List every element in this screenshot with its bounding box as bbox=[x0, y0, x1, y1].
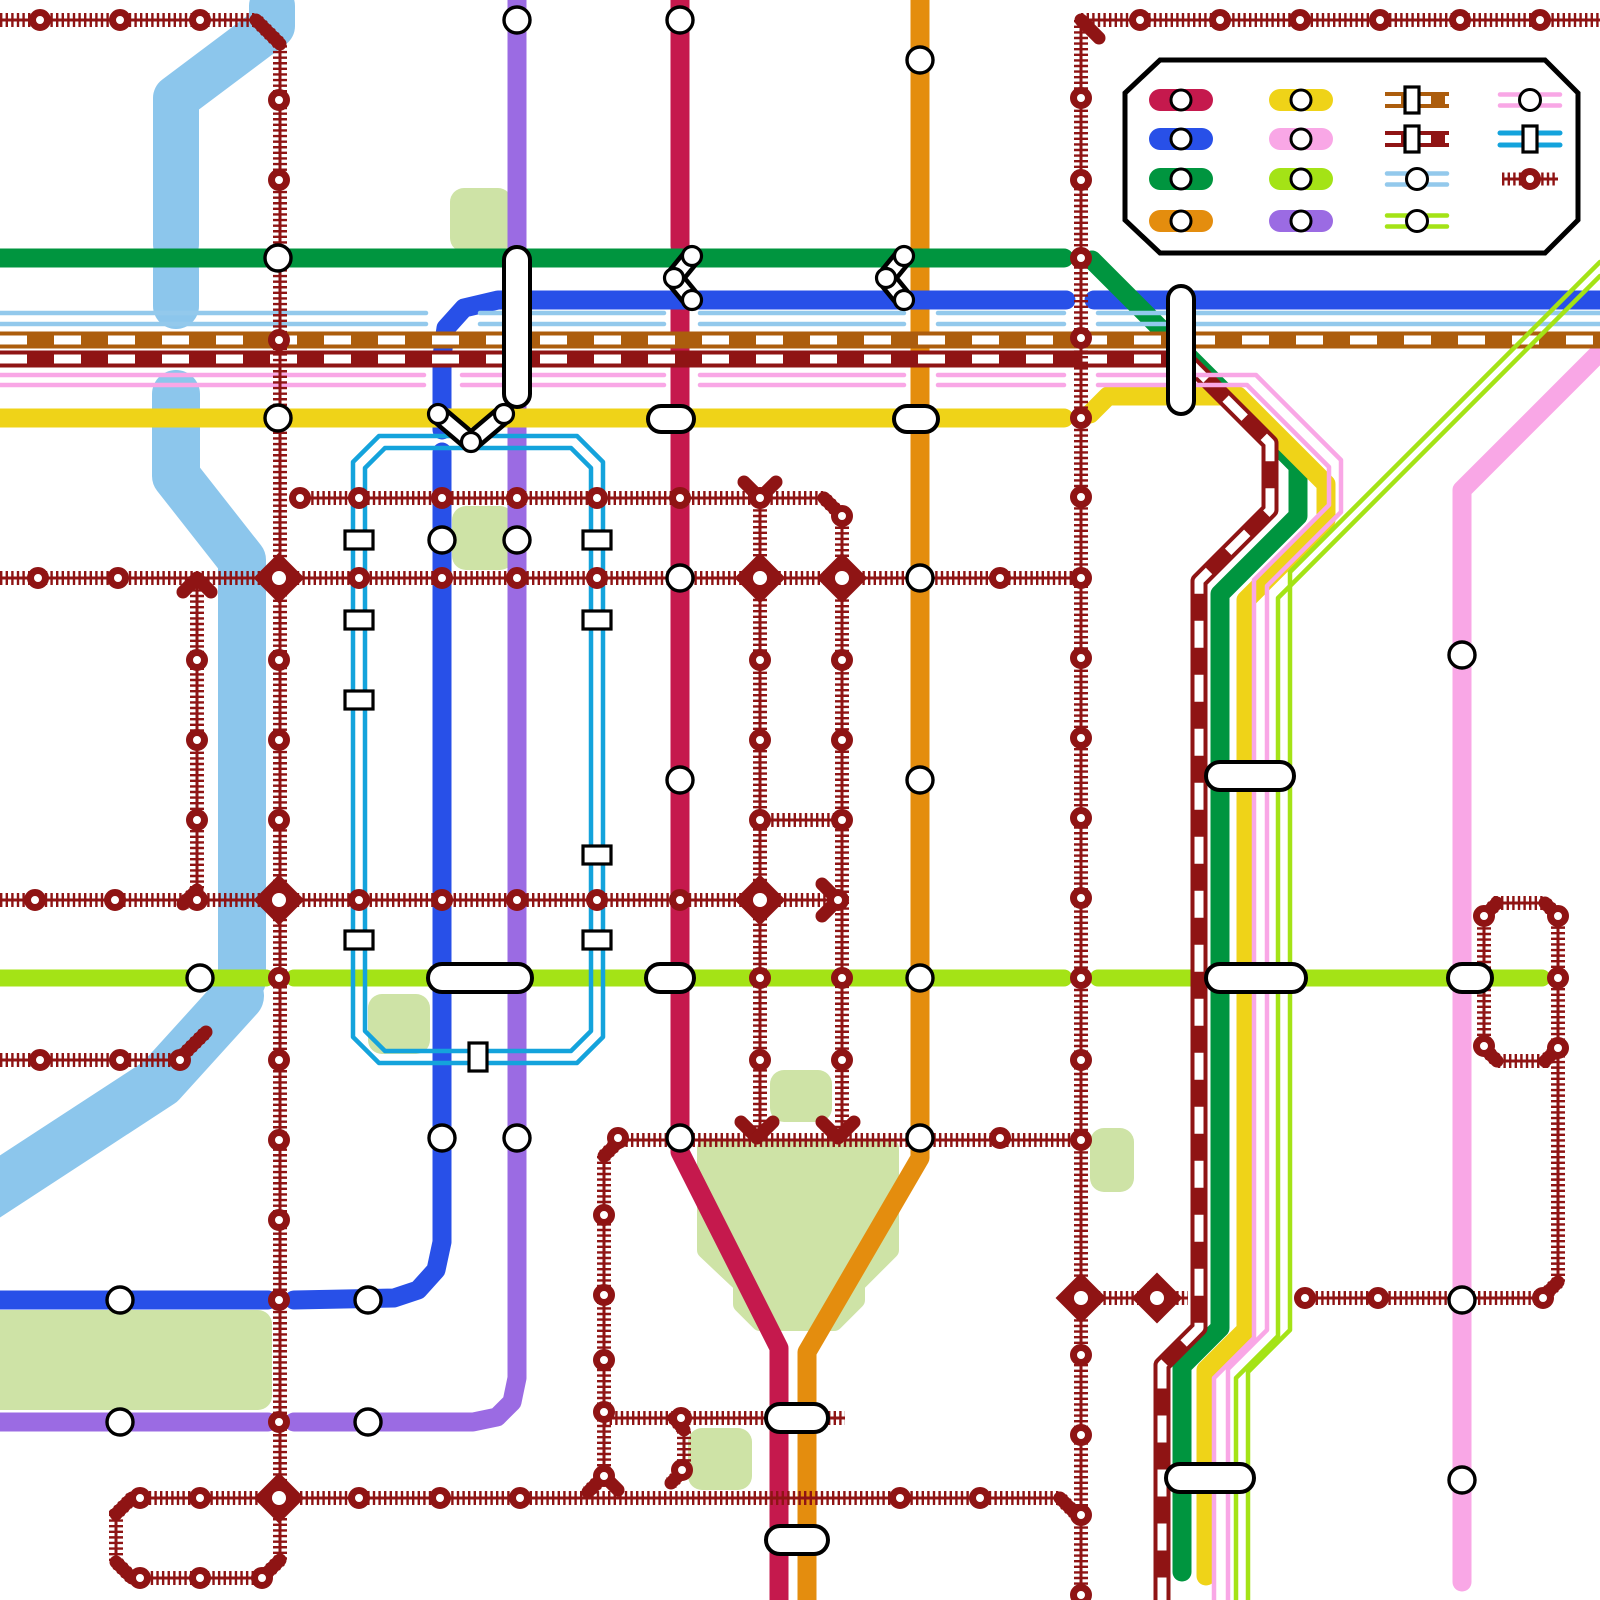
fork-node bbox=[665, 269, 684, 288]
fork-node bbox=[877, 269, 896, 288]
interchange-pill bbox=[1168, 286, 1194, 414]
donut-station bbox=[673, 893, 688, 908]
donut-station bbox=[753, 971, 768, 986]
fork-node bbox=[895, 247, 914, 266]
donut-station bbox=[193, 1491, 208, 1506]
donut-station bbox=[111, 571, 126, 586]
donut-station bbox=[597, 1353, 612, 1368]
legend-pink-line bbox=[1269, 128, 1333, 150]
interchange-pill bbox=[504, 247, 530, 407]
donut-station bbox=[1074, 251, 1089, 266]
circle-station bbox=[667, 1125, 693, 1151]
rect-station bbox=[345, 531, 373, 549]
transit-map-canvas bbox=[0, 0, 1600, 1600]
donut-station bbox=[433, 1491, 448, 1506]
donut-station bbox=[193, 1571, 208, 1586]
interchange-pill bbox=[648, 406, 694, 432]
donut-station bbox=[1074, 1053, 1089, 1068]
legend-blue-line bbox=[1149, 128, 1213, 150]
donut-station bbox=[108, 893, 123, 908]
donut-station bbox=[255, 1571, 270, 1586]
donut-station bbox=[597, 1469, 612, 1484]
donut-station bbox=[435, 571, 450, 586]
interchange-diamond-center bbox=[272, 893, 286, 907]
fork-node bbox=[429, 405, 448, 424]
circle-station bbox=[187, 965, 213, 991]
donut-station bbox=[1074, 490, 1089, 505]
circle-station bbox=[107, 1409, 133, 1435]
donut-station bbox=[590, 571, 605, 586]
donut-station bbox=[1133, 13, 1148, 28]
donut-station bbox=[1293, 13, 1308, 28]
interchange-diamond-center bbox=[753, 893, 767, 907]
legend-purple-line bbox=[1269, 210, 1333, 232]
donut-station bbox=[133, 1491, 148, 1506]
donut-station bbox=[597, 1208, 612, 1223]
donut-station bbox=[190, 893, 205, 908]
circle-station bbox=[1449, 642, 1475, 668]
donut-station bbox=[190, 653, 205, 668]
circle-station bbox=[265, 245, 291, 271]
donut-station bbox=[1536, 1291, 1551, 1306]
donut-station bbox=[1074, 331, 1089, 346]
circle-station bbox=[907, 47, 933, 73]
donut-station bbox=[510, 571, 525, 586]
donut-station bbox=[597, 1288, 612, 1303]
park bbox=[688, 1428, 752, 1490]
donut-station bbox=[1551, 1041, 1566, 1056]
interchange-pill bbox=[428, 964, 532, 992]
donut-station bbox=[1074, 1348, 1089, 1363]
interchange-diamond-center bbox=[272, 571, 286, 585]
donut-station bbox=[272, 1415, 287, 1430]
interchange-pill bbox=[646, 964, 694, 992]
donut-station bbox=[597, 1405, 612, 1420]
rect-station bbox=[583, 846, 611, 864]
donut-station bbox=[835, 509, 850, 524]
donut-station bbox=[753, 1053, 768, 1068]
rect-station bbox=[345, 931, 373, 949]
donut-station bbox=[674, 1411, 689, 1426]
donut-station bbox=[272, 653, 287, 668]
legend-crimson-line bbox=[1149, 89, 1213, 111]
donut-station bbox=[272, 1293, 287, 1308]
donut-station bbox=[1074, 731, 1089, 746]
rect-station bbox=[583, 931, 611, 949]
circle-station bbox=[504, 7, 530, 33]
circle-station bbox=[107, 1287, 133, 1313]
fork-node bbox=[683, 247, 702, 266]
donut-station bbox=[510, 491, 525, 506]
donut-station bbox=[590, 893, 605, 908]
park bbox=[1090, 1128, 1134, 1192]
donut-station bbox=[1477, 1039, 1492, 1054]
donut-station bbox=[1074, 651, 1089, 666]
donut-station bbox=[973, 1491, 988, 1506]
circle-station bbox=[429, 1125, 455, 1151]
park bbox=[770, 1070, 832, 1122]
interchange-pill bbox=[1448, 964, 1492, 992]
circle-station bbox=[429, 527, 455, 553]
donut-station bbox=[113, 1053, 128, 1068]
donut-station bbox=[352, 1491, 367, 1506]
donut-station bbox=[753, 491, 768, 506]
donut-station bbox=[272, 333, 287, 348]
fork-node bbox=[683, 291, 702, 310]
interchange-pill bbox=[766, 1526, 828, 1554]
park bbox=[0, 1310, 272, 1410]
donut-station bbox=[835, 971, 850, 986]
donut-station bbox=[31, 571, 46, 586]
donut-station bbox=[753, 653, 768, 668]
donut-station bbox=[272, 1133, 287, 1148]
donut-station bbox=[753, 813, 768, 828]
donut-station bbox=[1213, 13, 1228, 28]
donut-station bbox=[510, 893, 525, 908]
donut-station bbox=[675, 1463, 690, 1478]
donut-station bbox=[513, 1491, 528, 1506]
donut-station bbox=[835, 733, 850, 748]
donut-station bbox=[133, 1571, 148, 1586]
donut-station bbox=[835, 1053, 850, 1068]
donut-station bbox=[352, 893, 367, 908]
circle-station bbox=[907, 565, 933, 591]
circle-station bbox=[667, 565, 693, 591]
donut-station bbox=[1074, 891, 1089, 906]
donut-station bbox=[1074, 411, 1089, 426]
circle-station bbox=[504, 527, 530, 553]
interchange-pill bbox=[1206, 762, 1294, 790]
donut-station bbox=[1074, 1133, 1089, 1148]
circle-station bbox=[667, 767, 693, 793]
donut-station bbox=[352, 491, 367, 506]
park bbox=[450, 188, 512, 252]
donut-station bbox=[1551, 909, 1566, 924]
donut-station bbox=[835, 653, 850, 668]
donut-station bbox=[435, 491, 450, 506]
transit-map bbox=[0, 0, 1600, 1600]
donut-station bbox=[831, 893, 846, 908]
rect-station bbox=[583, 611, 611, 629]
circle-station bbox=[355, 1287, 381, 1313]
donut-station bbox=[190, 733, 205, 748]
circle-station bbox=[907, 1125, 933, 1151]
interchange-diamond-center bbox=[1074, 1291, 1088, 1305]
donut-station bbox=[1074, 1508, 1089, 1523]
rect-station bbox=[469, 1043, 487, 1071]
donut-station bbox=[272, 93, 287, 108]
rect-station bbox=[583, 531, 611, 549]
legend-green-line bbox=[1149, 168, 1213, 190]
circle-station bbox=[907, 965, 933, 991]
fork-node bbox=[895, 291, 914, 310]
donut-station bbox=[272, 971, 287, 986]
donut-station bbox=[611, 1131, 626, 1146]
donut-station bbox=[1074, 91, 1089, 106]
donut-station bbox=[753, 733, 768, 748]
donut-station bbox=[33, 1053, 48, 1068]
circle-station bbox=[265, 405, 291, 431]
circle-station bbox=[667, 7, 693, 33]
legend bbox=[1125, 60, 1578, 253]
donut-station bbox=[1074, 811, 1089, 826]
donut-station bbox=[193, 13, 208, 28]
donut-station bbox=[293, 491, 308, 506]
interchange-diamond-center bbox=[272, 1491, 286, 1505]
donut-station bbox=[1074, 971, 1089, 986]
donut-station bbox=[33, 13, 48, 28]
interchange-pill bbox=[1206, 964, 1306, 992]
circle-station bbox=[355, 1409, 381, 1435]
circle-station bbox=[907, 767, 933, 793]
donut-station bbox=[28, 893, 43, 908]
circle-station bbox=[504, 1125, 530, 1151]
donut-station bbox=[1074, 571, 1089, 586]
interchange-pill bbox=[894, 406, 938, 432]
legend-orange-line bbox=[1149, 210, 1213, 232]
donut-station bbox=[590, 491, 605, 506]
donut-station bbox=[1373, 13, 1388, 28]
interchange-diamond-center bbox=[835, 571, 849, 585]
donut-station bbox=[1074, 1428, 1089, 1443]
donut-station bbox=[993, 571, 1008, 586]
donut-station bbox=[1453, 13, 1468, 28]
donut-station bbox=[1371, 1291, 1386, 1306]
rect-station bbox=[345, 691, 373, 709]
donut-station bbox=[1298, 1291, 1313, 1306]
interchange-diamond-center bbox=[753, 571, 767, 585]
fork-node bbox=[462, 433, 481, 452]
donut-station bbox=[435, 893, 450, 908]
legend-lime-line bbox=[1269, 168, 1333, 190]
donut-station bbox=[1533, 13, 1548, 28]
donut-station bbox=[113, 13, 128, 28]
donut-station bbox=[1074, 1588, 1089, 1600]
donut-station bbox=[272, 1213, 287, 1228]
park bbox=[706, 1148, 890, 1322]
donut-station bbox=[173, 1053, 188, 1068]
donut-station bbox=[1551, 971, 1566, 986]
donut-station bbox=[1074, 173, 1089, 188]
circle-station bbox=[1449, 1287, 1475, 1313]
donut-station bbox=[893, 1491, 908, 1506]
donut-station bbox=[993, 1131, 1008, 1146]
rect-station bbox=[345, 611, 373, 629]
interchange-pill bbox=[1166, 1464, 1254, 1492]
donut-station bbox=[272, 173, 287, 188]
interchange-diamond-center bbox=[1150, 1291, 1164, 1305]
legend-yellow-line bbox=[1269, 89, 1333, 111]
donut-station bbox=[272, 1053, 287, 1068]
circle-station bbox=[1449, 1467, 1475, 1493]
donut-station bbox=[272, 733, 287, 748]
donut-station bbox=[673, 491, 688, 506]
donut-station bbox=[352, 571, 367, 586]
fork-node bbox=[495, 405, 514, 424]
donut-station bbox=[1477, 909, 1492, 924]
interchange-pill bbox=[766, 1404, 828, 1432]
donut-station bbox=[190, 813, 205, 828]
donut-station bbox=[272, 813, 287, 828]
donut-station bbox=[835, 813, 850, 828]
